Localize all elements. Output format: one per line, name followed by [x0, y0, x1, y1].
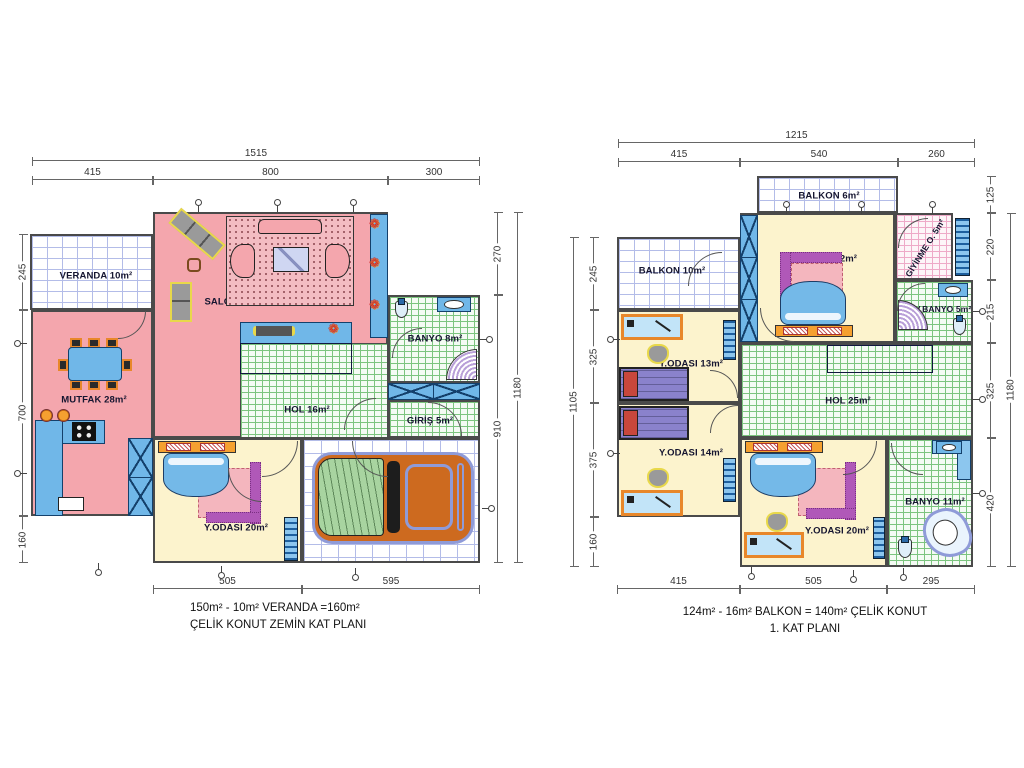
chair-icon — [766, 512, 788, 532]
dim-left-seg: 700 — [22, 310, 23, 516]
dim-top-seg: 800 — [153, 179, 388, 180]
room-label: BALKON 6m² — [798, 191, 859, 202]
chair-icon — [58, 359, 68, 371]
bed-icon — [619, 367, 689, 401]
room-label: Y.ODASI 20m² — [805, 526, 869, 537]
dim-left-seg: 160 — [593, 517, 594, 567]
sofa-icon — [170, 282, 192, 322]
chair-icon — [70, 380, 82, 390]
stove-icon — [72, 422, 96, 441]
sink-icon — [437, 297, 471, 312]
dim-right-seg: 325 — [990, 343, 991, 438]
radiator-icon — [873, 517, 885, 559]
desk-icon — [744, 532, 804, 558]
pillow-icon — [623, 410, 638, 436]
sofa-set-icon — [226, 216, 354, 306]
pillow-icon — [200, 443, 225, 451]
caption-line1: 124m² - 16m² BALKON = 140m² ÇELİK KONUT — [655, 604, 955, 621]
floor-plan-canvas: 1515 415 800 300 245 700 160 270 910 118… — [0, 0, 1024, 768]
chair-icon — [122, 359, 132, 371]
window-marker-icon — [783, 201, 790, 208]
room-label: MUTFAK 28m² — [61, 395, 127, 406]
rug — [206, 512, 261, 523]
window-marker-icon — [748, 573, 755, 580]
table-top — [68, 347, 122, 381]
dim-top-seg: 415 — [618, 161, 740, 162]
window-marker-icon — [979, 308, 986, 315]
chair-icon — [647, 468, 669, 488]
rug — [806, 508, 856, 519]
plant-icon: ❁ — [369, 217, 380, 230]
pillow-icon — [623, 371, 638, 397]
coffee-table-icon — [273, 247, 309, 272]
room-label: BANYO 11m² — [905, 497, 965, 508]
desk-icon — [621, 490, 683, 516]
sink-icon — [938, 283, 968, 297]
desk-icon — [621, 314, 683, 340]
window-marker-icon — [929, 201, 936, 208]
window-marker-icon — [350, 199, 357, 206]
window-marker-icon — [979, 490, 986, 497]
room-label: VERANDA 10m² — [60, 271, 133, 282]
window-marker-icon — [607, 450, 614, 457]
dim-left-seg: 245 — [22, 234, 23, 310]
dim-right-seg: 125 — [990, 176, 991, 213]
window-marker-icon — [218, 572, 225, 579]
pillow-icon — [753, 443, 778, 451]
chair-icon — [88, 380, 100, 390]
sofa-icon — [258, 219, 322, 234]
window-marker-icon — [14, 470, 21, 477]
room-label: Y.ODASI 20m² — [204, 523, 268, 534]
toilet-icon — [395, 301, 408, 318]
dim-right-seg: 215 — [990, 280, 991, 343]
window-marker-icon — [979, 396, 986, 403]
pot-icon — [57, 409, 70, 422]
pillow-icon — [787, 443, 812, 451]
car-icon — [312, 452, 474, 544]
wardrobe-icon — [740, 215, 758, 258]
window-marker-icon — [95, 569, 102, 576]
sink-icon — [936, 441, 962, 454]
pot-icon — [40, 409, 53, 422]
dim-bottom-seg: 415 — [617, 588, 740, 589]
dim-bottom-seg: 505 — [153, 588, 302, 589]
tv-icon — [253, 326, 295, 336]
radiator-icon — [284, 517, 298, 561]
room-label: Y.ODASI 14m² — [659, 448, 723, 459]
window-marker-icon — [858, 201, 865, 208]
dim-top-seg: 540 — [740, 161, 898, 162]
radiator-icon — [723, 320, 736, 360]
dim-right-seg: 910 — [497, 295, 498, 563]
plant-icon: ❁ — [328, 322, 339, 335]
dim-left-seg: 325 — [593, 310, 594, 403]
wardrobe-icon — [128, 477, 153, 516]
wardrobe-icon — [128, 438, 153, 478]
plant-icon: ❁ — [369, 256, 380, 269]
window-marker-icon — [486, 336, 493, 343]
pillow-icon — [817, 327, 842, 335]
bed-icon — [619, 406, 689, 440]
plant-shelf — [370, 214, 388, 338]
dim-bottom-seg: 295 — [887, 588, 975, 589]
kitchen-sink-icon — [58, 497, 84, 511]
wardrobe-icon — [740, 257, 758, 300]
bed-icon — [745, 441, 823, 499]
wardrobe-icon — [388, 383, 434, 400]
chair-icon — [106, 380, 118, 390]
chair-icon — [647, 344, 669, 364]
window-marker-icon — [352, 574, 359, 581]
armchair-icon — [230, 244, 255, 278]
dim-left-total: 1105 — [573, 237, 574, 567]
dim-right-seg: 270 — [497, 212, 498, 295]
plant-icon: ❁ — [369, 298, 380, 311]
dim-top-seg: 415 — [32, 179, 153, 180]
dim-bottom-seg: 595 — [302, 588, 480, 589]
room-veranda: VERANDA 10m² — [30, 234, 153, 310]
room-label: HOL 25m² — [825, 396, 871, 407]
dim-bottom-seg: 505 — [740, 588, 887, 589]
dim-left-seg: 245 — [593, 237, 594, 310]
dim-left-seg: 375 — [593, 403, 594, 517]
stairs-icon — [240, 343, 352, 374]
window-marker-icon — [195, 199, 202, 206]
room-balkon6: BALKON 6m² — [757, 176, 898, 213]
toilet-icon — [898, 539, 912, 558]
radiator-icon — [723, 458, 736, 502]
caption-line2: ÇELİK KONUT ZEMİN KAT PLANI — [190, 617, 366, 634]
caption-line2: 1. KAT PLANI — [655, 621, 955, 638]
wardrobe-icon — [433, 383, 480, 400]
dim-right-total: 1180 — [1010, 213, 1011, 567]
room-label: HOL 16m² — [284, 405, 330, 416]
stairs-icon — [827, 345, 933, 373]
armchair-icon — [325, 244, 350, 278]
dim-right-seg: 420 — [990, 438, 991, 567]
side-table-icon — [187, 258, 201, 272]
radiator-icon — [955, 218, 970, 276]
dim-left-seg: 160 — [22, 516, 23, 563]
plan-caption: 124m² - 16m² BALKON = 140m² ÇELİK KONUT … — [655, 604, 955, 638]
window-marker-icon — [850, 576, 857, 583]
toilet-icon — [953, 318, 966, 335]
dining-table-icon — [58, 338, 132, 390]
dim-right-total: 1180 — [517, 212, 518, 563]
plan-caption: 150m² - 10m² VERANDA =160m² ÇELİK KONUT … — [190, 600, 366, 634]
window-marker-icon — [14, 340, 21, 347]
dim-top-total: 1215 — [618, 142, 975, 143]
dim-top-total: 1515 — [32, 160, 480, 161]
window-marker-icon — [488, 505, 495, 512]
dim-top-seg: 300 — [388, 179, 480, 180]
window-marker-icon — [900, 574, 907, 581]
pillow-icon — [166, 443, 191, 451]
bed-icon — [158, 441, 236, 499]
dim-top-seg: 260 — [898, 161, 975, 162]
window-marker-icon — [607, 336, 614, 343]
caption-line1: 150m² - 10m² VERANDA =160m² — [190, 600, 366, 617]
window-marker-icon — [274, 199, 281, 206]
wardrobe-icon — [740, 299, 758, 342]
dim-right-seg: 220 — [990, 213, 991, 280]
